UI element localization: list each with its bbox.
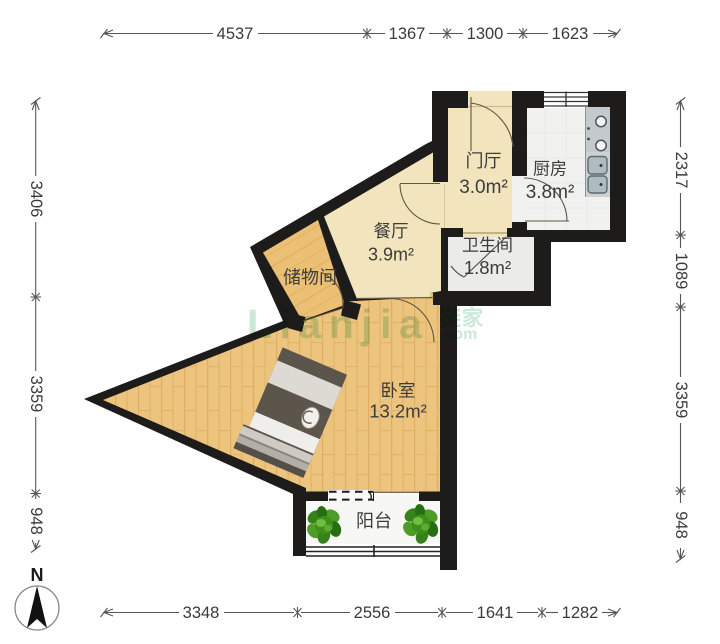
svg-text:3348: 3348 [183,604,220,622]
svg-text:门厅: 门厅 [466,151,502,171]
svg-text:储物间: 储物间 [283,268,337,288]
svg-text:1623: 1623 [552,25,589,43]
svg-text:卫生间: 卫生间 [462,236,513,255]
svg-text:948: 948 [672,511,690,539]
svg-text:3.9m²: 3.9m² [368,245,414,265]
svg-text:N: N [31,565,44,585]
svg-text:1282: 1282 [562,604,599,622]
svg-text:阳台: 阳台 [356,511,392,531]
svg-text:2317: 2317 [672,152,690,189]
svg-text:1089: 1089 [672,253,690,290]
svg-text:13.2m²: 13.2m² [369,401,427,422]
svg-text:卧室: 卧室 [381,381,416,401]
svg-text:948: 948 [27,507,45,535]
svg-text:餐厅: 餐厅 [374,221,409,241]
svg-text:3359: 3359 [27,376,45,413]
svg-text:3406: 3406 [27,181,45,218]
svg-text:厨房: 厨房 [533,160,567,179]
svg-text:1.8m²: 1.8m² [464,257,511,278]
svg-text:.com: .com [440,326,477,343]
svg-text:Lianjia: Lianjia [247,301,429,347]
svg-text:4537: 4537 [217,25,254,43]
svg-text:3.8m²: 3.8m² [526,182,575,203]
svg-text:3.0m²: 3.0m² [459,177,508,198]
svg-text:1367: 1367 [389,25,426,43]
svg-text:2556: 2556 [354,604,391,622]
svg-text:3359: 3359 [672,382,690,419]
svg-text:1300: 1300 [467,25,504,43]
svg-text:1641: 1641 [477,604,514,622]
